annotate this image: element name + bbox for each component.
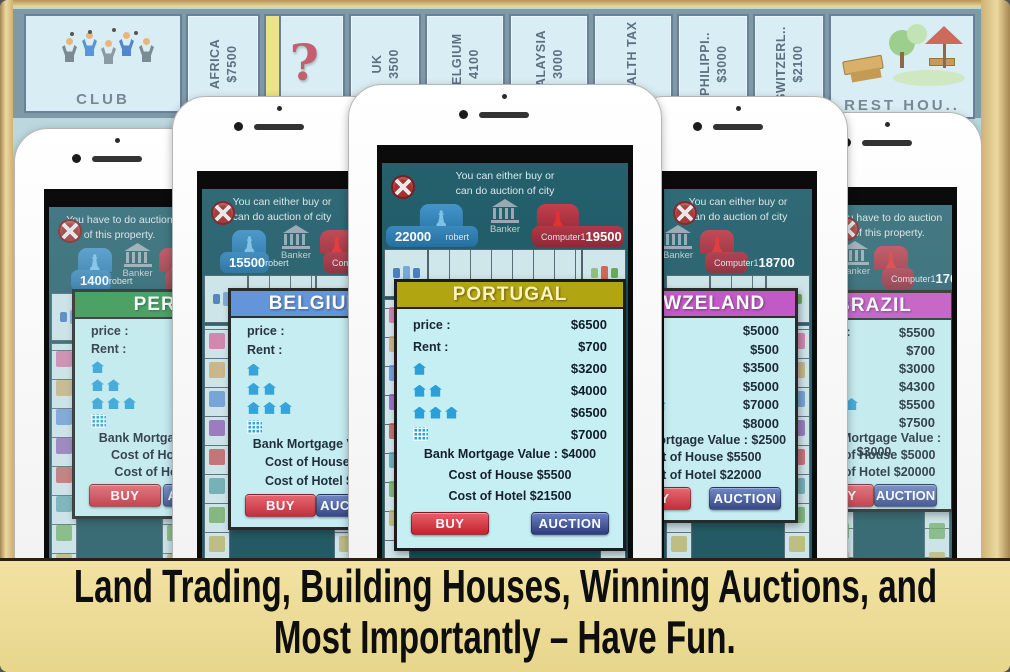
prompt-message-line-2: can do auction of city [382, 184, 628, 199]
rent-row: Rent : $500 [664, 340, 795, 358]
camera-dot-icon [72, 154, 81, 163]
two-house-row [231, 380, 362, 398]
bank-icon [123, 243, 153, 267]
property-dialog-title: PORTUGAL [397, 282, 623, 309]
red-tab-bar: Computer1 1764 [882, 268, 914, 289]
property-dialog-body: price : $5000 Rent : $500 $3500 [664, 318, 795, 520]
sensor-dot-icon [885, 122, 890, 127]
frame-edge-top [0, 0, 1010, 7]
caption-line-1: Land Trading, Building Houses, Winning A… [73, 561, 936, 612]
prompt-message-line-1: You can either buy or [382, 169, 628, 184]
house-icon [413, 407, 426, 419]
blue-player-name: robert [109, 276, 133, 286]
banker: Banker [664, 225, 705, 273]
one-house-row: $3500 [664, 359, 795, 377]
blue-tab-bar: 1400 robert [71, 270, 111, 291]
camera-dot-icon [459, 110, 468, 119]
property-dialog: BELGIUM price : Rent : [228, 288, 362, 530]
board-tile-text: ? [257, 33, 352, 95]
buy-button[interactable]: BUY [664, 487, 691, 510]
prompt-message: You can either buy or can do auction of … [382, 169, 628, 199]
house-icon [279, 402, 292, 414]
house-icon [429, 385, 442, 397]
property-dialog-title: NEWZELAND [664, 291, 795, 318]
hotel-cost-text: Cost of Hotel $20 [231, 474, 362, 491]
house-icon [107, 397, 120, 409]
hotel-row [231, 418, 362, 436]
banker: Banker [478, 199, 532, 247]
blue-player-money: 1400 [80, 273, 109, 288]
board-tile-name: PHILIPPI.. [698, 31, 712, 95]
price-row: price : $6500 [397, 316, 623, 334]
club-crowd-icon [54, 28, 164, 84]
hotel-cost-text: Cost of Hotel $21500 [397, 489, 623, 506]
banker-label: Banker [490, 224, 520, 235]
price-row: price : $5000 [664, 322, 795, 340]
price-row: price : [231, 322, 362, 340]
red-tab-bump [874, 246, 908, 270]
house-cost-text: Cost of House $5 [231, 455, 362, 472]
board-tile-price: 4100 [467, 49, 481, 79]
blue-player-money: 22000 [395, 229, 431, 244]
red-tab-bump [700, 230, 734, 254]
speaker-slot-icon [254, 124, 304, 130]
house-icon [429, 407, 442, 419]
camera-dot-icon [234, 122, 243, 131]
speaker-slot-icon [713, 124, 763, 130]
player-tab-blue[interactable]: 22000 robert [386, 205, 478, 247]
bank-icon [664, 225, 693, 249]
house-icon [107, 379, 120, 391]
player-tab-red[interactable]: Computer1 1764 [882, 247, 914, 289]
board-tile-name: SWITZERL.. [774, 26, 788, 102]
close-icon[interactable] [673, 201, 697, 225]
speaker-slot-icon [479, 112, 529, 118]
house-icon [413, 385, 426, 397]
caption-line-2: Most Importantly – Have Fun. [274, 612, 736, 663]
house-icon [91, 379, 104, 391]
auction-button[interactable]: AUCTION [874, 484, 937, 507]
mortgage-value-text: Bank Mortgage Value [231, 437, 362, 454]
frame-edge-left [0, 0, 13, 558]
camera-dot-icon [693, 122, 702, 131]
speaker-slot-icon [862, 140, 912, 146]
house-icon [91, 361, 104, 373]
mortgage-value-text: Bank Mortgage Value : $4000 [397, 447, 623, 464]
board-tile-name: UK [370, 54, 384, 73]
blue-tab-bump [78, 248, 112, 272]
house-icon [263, 383, 276, 395]
red-tab-bump [537, 204, 579, 228]
board-tile-price: $3000 [715, 45, 729, 82]
property-dialog-title: BELGIUM [231, 291, 362, 318]
red-player-name: Computer1 [714, 258, 759, 268]
hotel-icon [91, 414, 106, 428]
house-icon [664, 399, 666, 411]
hotel-icon [247, 420, 262, 434]
three-house-row: $6500 [397, 404, 623, 422]
board-tile-name: AFRICA [208, 38, 222, 88]
property-dialog-body: price : Rent : [231, 318, 362, 527]
player-tabs: 15500 robert Banker Computer1 [216, 231, 362, 273]
promo-screenshot: CLUB REST HOU.. AFRICA $7500 ? UK 3500 B… [0, 0, 1010, 672]
player-tab-red[interactable]: Computer1 18700 [705, 231, 748, 273]
blue-tab-bar: 15500 robert [220, 252, 269, 273]
buy-button[interactable]: BUY [245, 494, 316, 517]
mortgage-value-text: Bank Mortgage Value : $2500 [664, 433, 795, 450]
player-tab-blue[interactable]: 1400 robert [71, 249, 111, 291]
dialog-buttons: BUY AUCTION [397, 512, 623, 535]
hotel-icon [413, 427, 428, 441]
buy-button[interactable]: BUY [89, 484, 161, 507]
sensor-dot-icon [736, 106, 741, 111]
red-player-name: Computer1 [541, 232, 586, 242]
close-icon[interactable] [391, 175, 415, 199]
buy-button[interactable]: BUY [411, 512, 489, 535]
property-dialog: NEWZELAND price : $5000 Rent : $500 $35 [664, 288, 798, 523]
house-icon [445, 407, 458, 419]
blue-player-name: robert [265, 258, 289, 268]
rent-row: Rent : $700 [397, 338, 623, 356]
house-icon [263, 402, 276, 414]
dialog-buttons: BUY AUCTION [231, 494, 362, 517]
house-icon [123, 397, 136, 409]
auction-button[interactable]: AUCTION [709, 487, 781, 510]
sensor-dot-icon [277, 106, 282, 111]
two-house-row: $4000 [397, 382, 623, 400]
board-tile-price: $2100 [791, 45, 805, 82]
two-house-row: $5000 [664, 377, 795, 395]
board-tile-price: 3500 [387, 49, 401, 79]
club-label: CLUB [26, 91, 180, 108]
board-tile-price: 3000 [551, 49, 565, 79]
house-icon [247, 364, 260, 376]
hotel-row: $7000 [397, 425, 623, 443]
blue-player-name: robert [445, 232, 469, 242]
red-player-money: 19500 [586, 229, 622, 244]
hotel-cost-text: Cost of Hotel $22000 [664, 468, 795, 485]
caption-banner: Land Trading, Building Houses, Winning A… [0, 558, 1010, 672]
player-tabs: 22000 robert Banker Computer1 19500 [382, 205, 628, 247]
dialog-buttons: BUY AUCTION [664, 487, 795, 510]
three-house-row [231, 399, 362, 417]
blue-tab-bar: 22000 robert [386, 226, 478, 247]
house-cost-text: Cost of House $5500 [397, 468, 623, 485]
rest-house-icon [841, 24, 967, 94]
close-icon[interactable] [58, 219, 82, 243]
bank-icon [281, 225, 311, 249]
house-icon [247, 383, 260, 395]
property-dialog-body: price : $6500 Rent : $700 $3200 [397, 309, 623, 548]
three-house-row: $7000 [664, 396, 795, 414]
blue-tab-bump [420, 204, 462, 228]
property-dialog: PORTUGAL price : $6500 Rent : $700 $320 [394, 279, 626, 551]
red-tab-bar: Computer1 18700 [705, 252, 748, 273]
board-corner-rest-house: REST HOU.. [829, 14, 975, 119]
hotel-row: $8000 [664, 414, 795, 432]
board-tile-name: ? [290, 33, 320, 92]
house-icon [413, 363, 426, 375]
one-house-row: $3200 [397, 360, 623, 378]
blue-tab-bump [232, 230, 266, 254]
house-icon [91, 397, 104, 409]
board-tile-price: $7500 [225, 45, 239, 82]
board-corner-club: CLUB [24, 14, 182, 113]
red-player-name: Computer1 [891, 274, 936, 284]
bank-icon [490, 199, 520, 223]
sensor-dot-icon [502, 94, 507, 99]
frame-edge-right [981, 0, 1010, 558]
close-icon[interactable] [211, 201, 235, 225]
player-tabs: Banker Computer1 18700 [664, 231, 752, 273]
red-player-money: 1764 [936, 271, 952, 286]
one-house-row [231, 361, 362, 379]
house-icon [247, 402, 260, 414]
banker-label: Banker [664, 250, 693, 261]
auction-button[interactable]: AUCTION [531, 512, 609, 535]
player-tab-blue[interactable]: 15500 robert [220, 231, 269, 273]
red-player-money: 18700 [759, 255, 795, 270]
rent-row: Rent : [231, 341, 362, 359]
speaker-slot-icon [92, 156, 142, 162]
red-tab-bar: Computer1 19500 [532, 226, 624, 247]
player-tab-red[interactable]: Computer1 19500 [532, 205, 624, 247]
house-cost-text: Cost of House $5500 [664, 450, 795, 467]
sensor-dot-icon [115, 138, 120, 143]
blue-player-money: 15500 [229, 255, 265, 270]
